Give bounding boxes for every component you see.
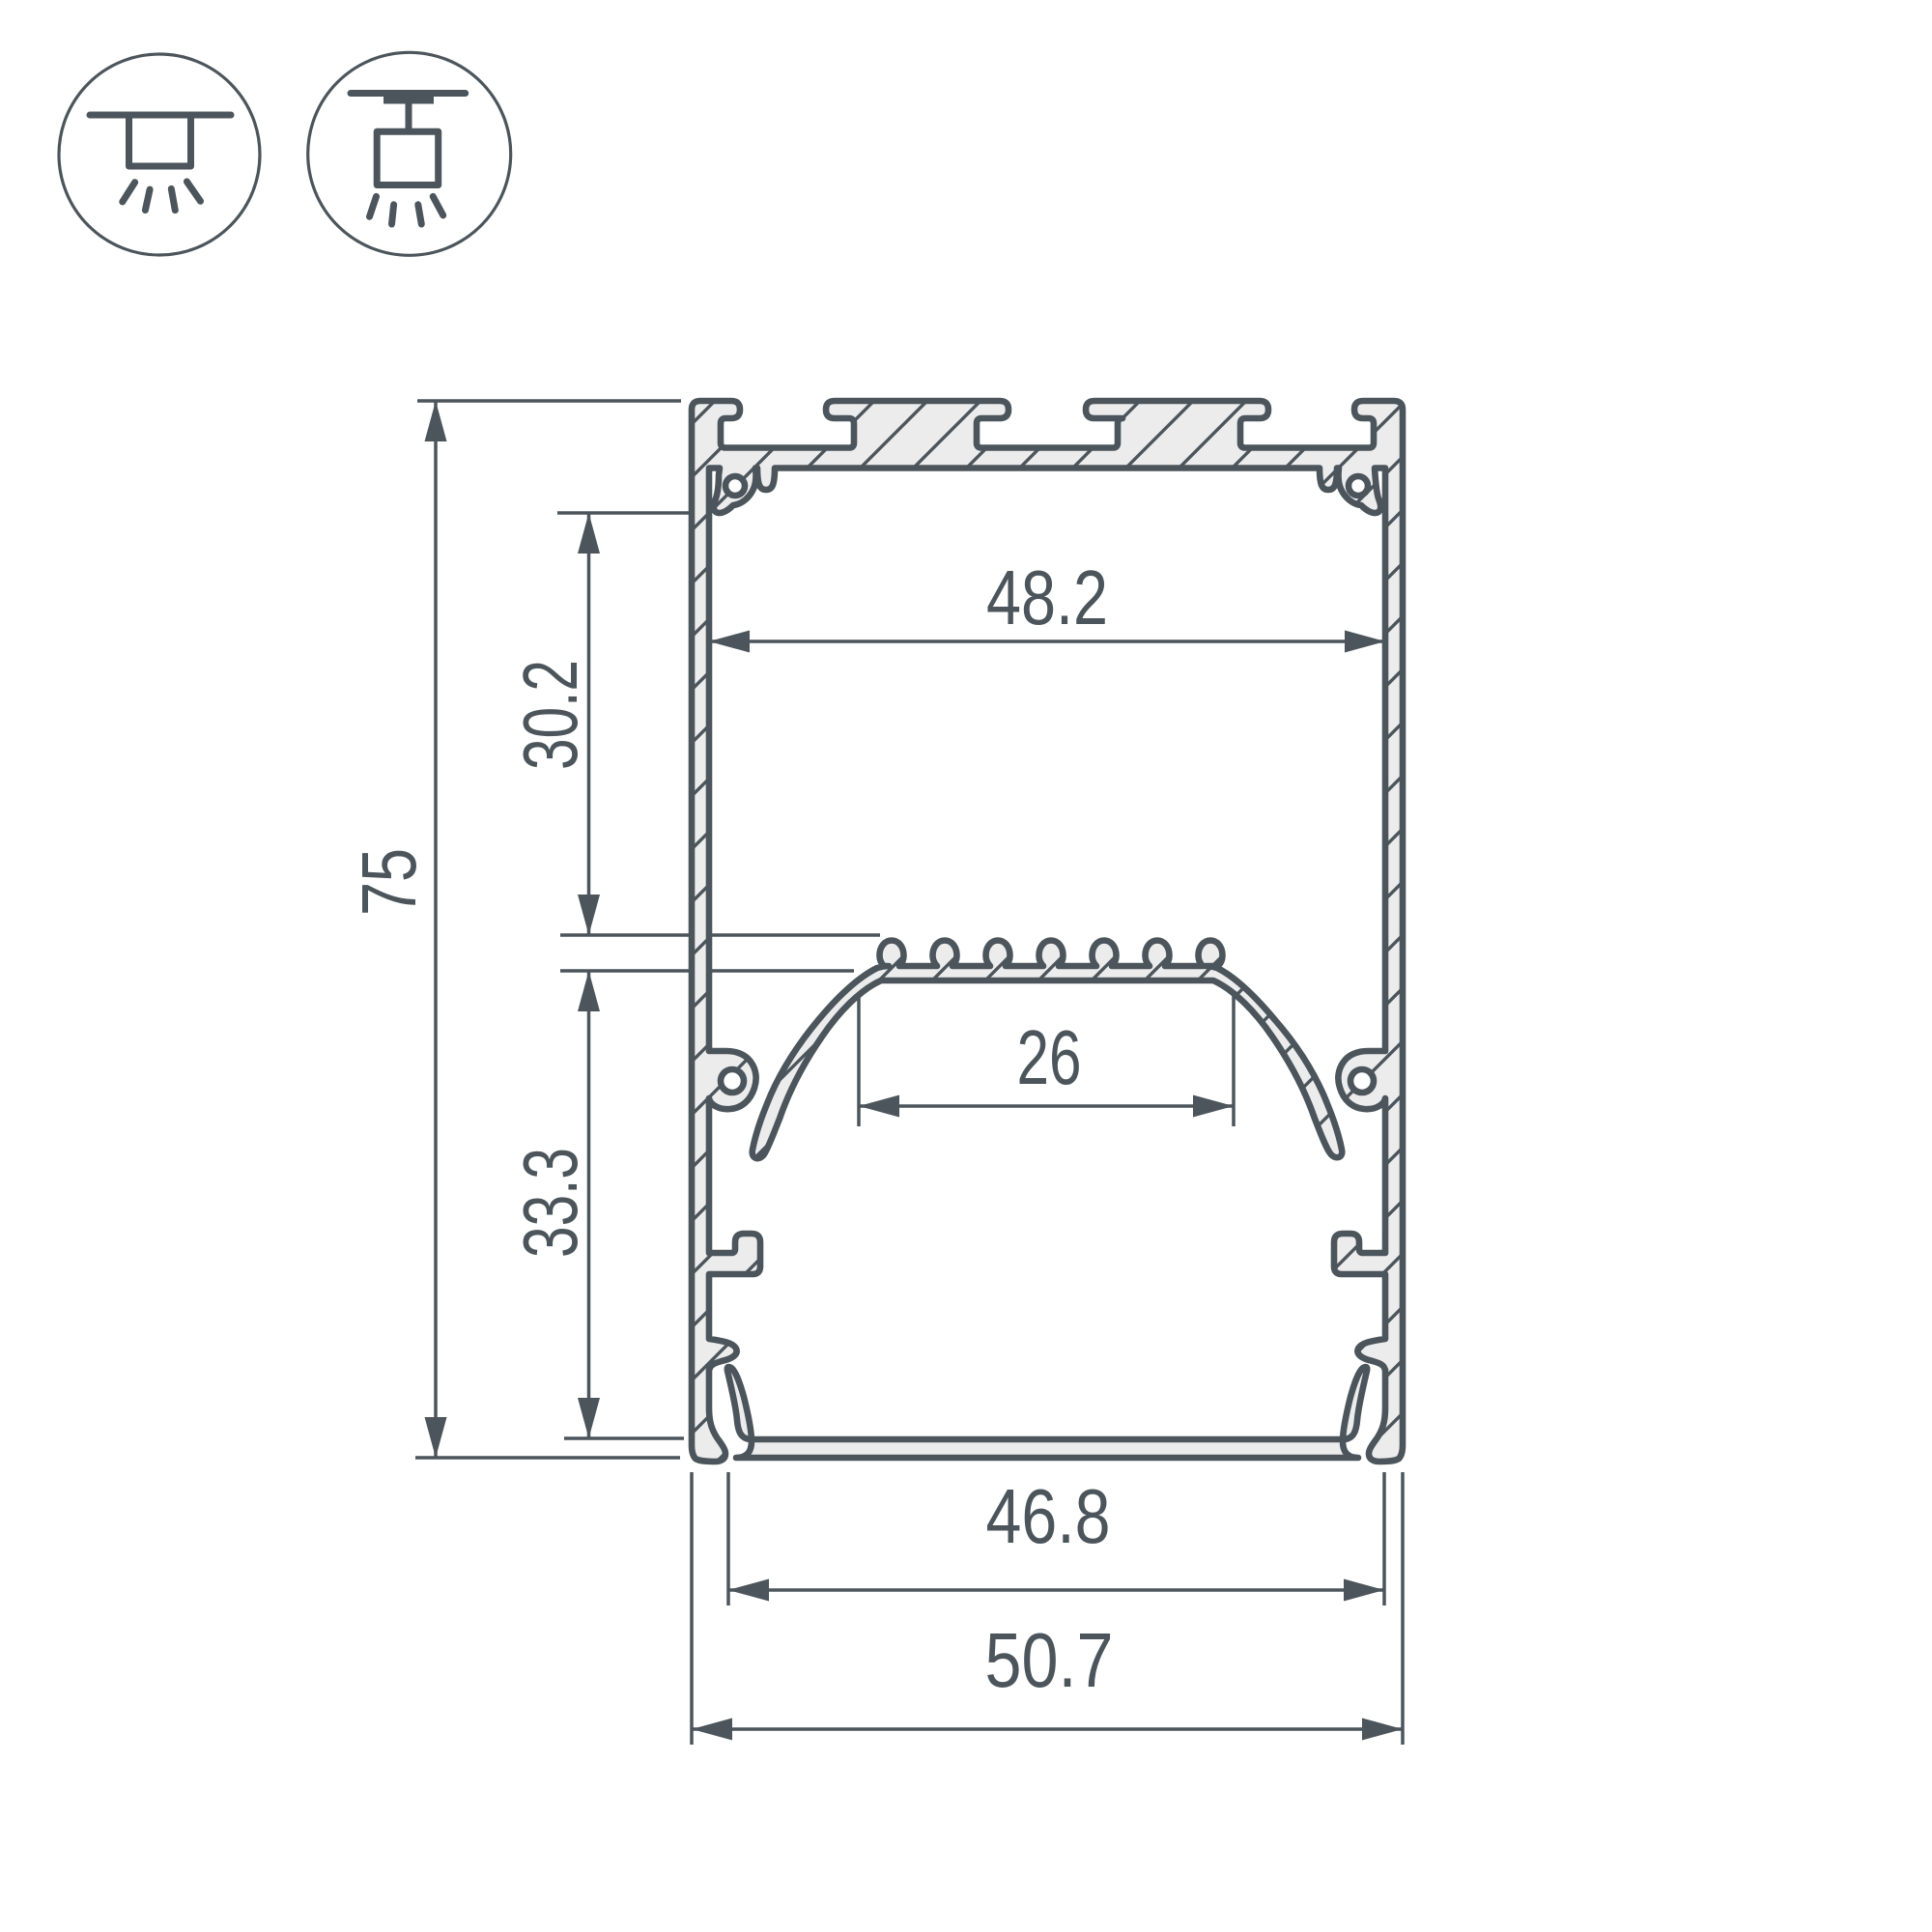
svg-text:30.2: 30.2 <box>507 660 593 770</box>
svg-text:46.8: 46.8 <box>986 1473 1111 1559</box>
svg-text:75: 75 <box>346 848 432 916</box>
svg-text:33.3: 33.3 <box>507 1148 593 1258</box>
svg-text:26: 26 <box>1017 1014 1082 1100</box>
svg-text:48.2: 48.2 <box>986 554 1108 640</box>
svg-text:50.7: 50.7 <box>985 1617 1114 1703</box>
